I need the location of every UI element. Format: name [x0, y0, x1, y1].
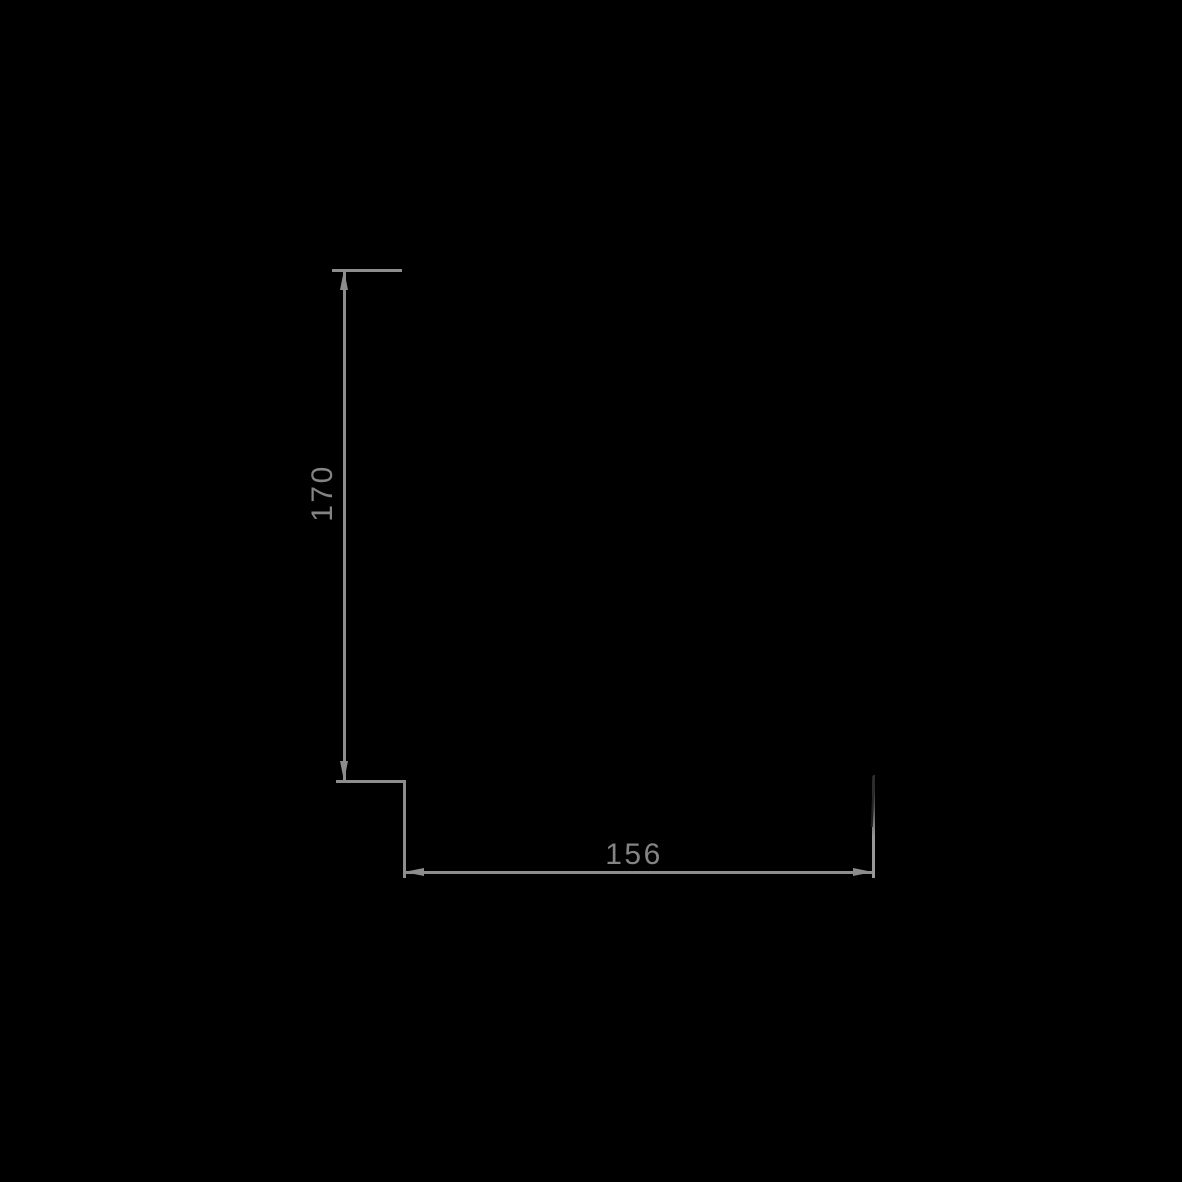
dimension-line-vertical — [343, 270, 346, 781]
dimension-label-170: 170 — [306, 433, 340, 553]
dimension-label-156: 156 — [574, 838, 694, 872]
arrow-up-icon — [340, 270, 348, 290]
arrow-left-icon — [404, 868, 424, 876]
drawing-canvas: 170 156 — [0, 0, 1182, 1182]
arrow-right-icon — [853, 868, 873, 876]
arrow-down-icon — [340, 761, 348, 781]
extension-line-left — [403, 780, 406, 878]
